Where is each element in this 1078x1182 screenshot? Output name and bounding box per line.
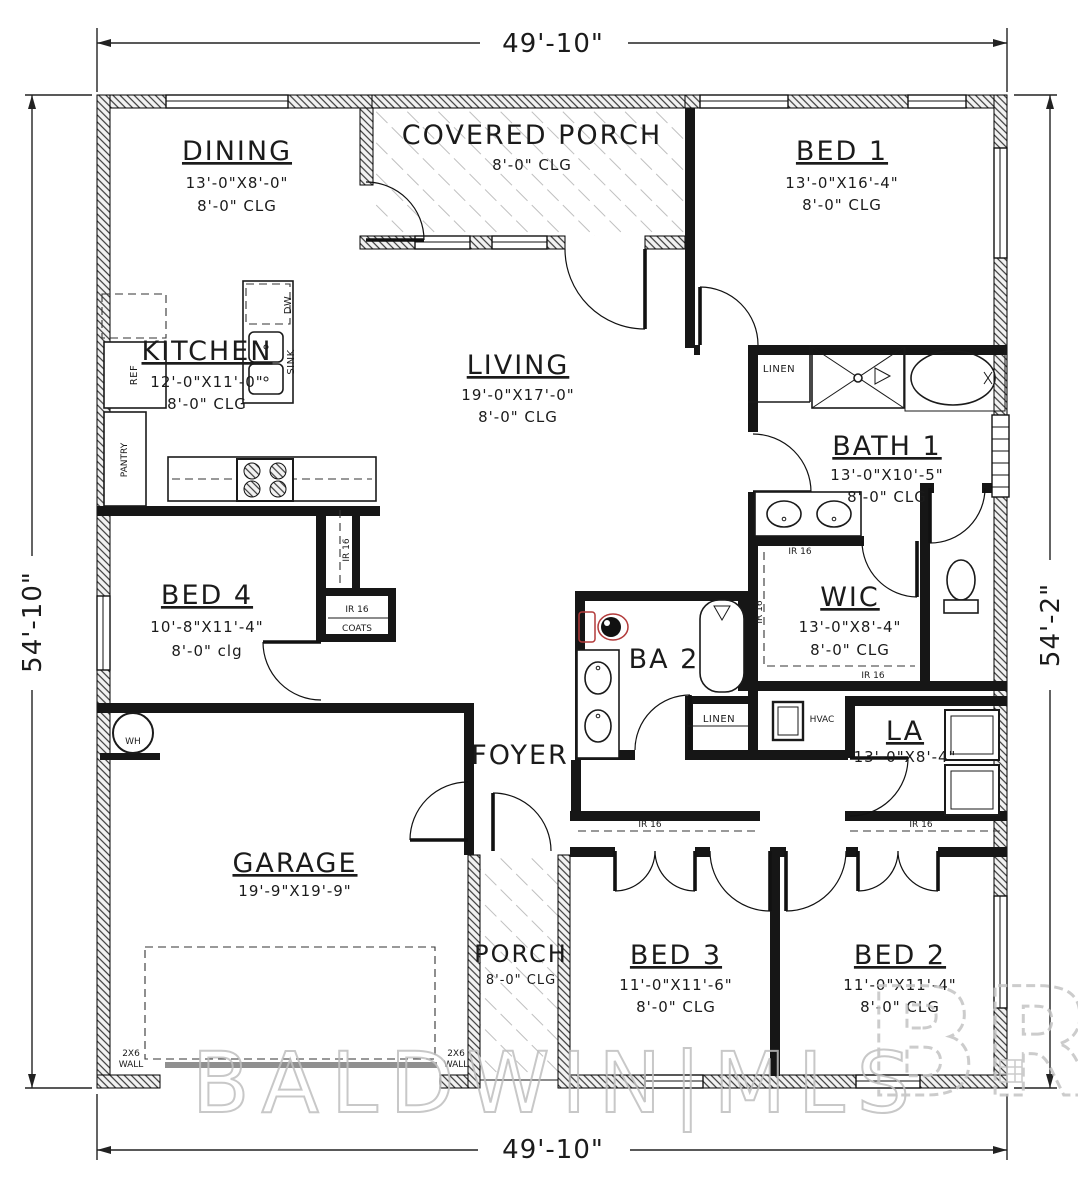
dryer	[945, 765, 999, 815]
window	[492, 236, 547, 249]
door-front-entry	[493, 793, 551, 851]
door-bed4	[263, 642, 321, 700]
room-name: WIC	[820, 582, 880, 613]
watermark-text: BALDWIN|MLS	[192, 1034, 922, 1132]
room-label-foyer: FOYER	[471, 740, 569, 771]
floor-plan-page: 49'-10" 49'-10" 54'-10" 54'-2"	[0, 0, 1078, 1182]
stove	[237, 459, 293, 501]
room-clg: 8'-0" clg	[171, 642, 242, 660]
room-name: LA	[886, 716, 924, 747]
room-name: BATH 1	[832, 431, 941, 462]
room-size: 10'-8"X11'-4"	[150, 618, 263, 636]
toilet-seat	[601, 617, 621, 637]
dimension-right: 54'-2"	[1014, 95, 1066, 1088]
window	[994, 148, 1007, 258]
room-label-ba2: BA 2	[629, 644, 700, 675]
dim-left-label: 54'-10"	[18, 571, 48, 673]
room-clg: 8'-0" CLG	[802, 196, 882, 214]
ir16-label: IR 16	[861, 671, 884, 681]
room-name: COVERED PORCH	[402, 120, 662, 151]
water-heater	[113, 713, 153, 753]
dim-bottom-label: 49'-10"	[502, 1135, 604, 1165]
room-name: DINING	[182, 136, 292, 167]
room-clg: 8'-0" CLG	[847, 488, 927, 506]
room-clg: 8'-0" CLG	[492, 156, 572, 174]
double-vanity	[755, 492, 861, 536]
toilet	[947, 560, 975, 600]
room-clg: 8'-0" CLG	[636, 998, 716, 1016]
room-size: 13'-0"X8'-4"	[799, 618, 902, 636]
room-label-dining: DINING 13'-0"X8'-0" 8'-0" CLG	[182, 136, 292, 215]
room-clg: 8'-0" CLG	[478, 408, 558, 426]
ba2-tub	[700, 600, 744, 692]
shower-head-icon	[875, 368, 890, 384]
door-bed1	[700, 287, 758, 345]
floor-plan-drawing: 49'-10" 49'-10" 54'-10" 54'-2"	[0, 0, 1078, 1182]
bathtub	[911, 351, 995, 405]
tub-platform	[905, 347, 1005, 411]
window	[97, 596, 110, 670]
door-ba2	[635, 695, 690, 750]
door-bed2	[786, 851, 846, 911]
room-label-bed1: BED 1 13'-0"X16'-4" 8'-0" CLG	[785, 136, 898, 214]
room-label-bath1: BATH 1 13'-0"X10'-5" 8'-0" CLG	[830, 431, 943, 506]
dimension-top: 49'-10"	[97, 28, 1007, 92]
ref-label: REF	[129, 365, 140, 386]
kitchen-fixtures: REF DW SINK PANTRY	[102, 281, 376, 506]
room-clg: 8'-0" CLG	[167, 395, 247, 413]
window	[166, 95, 288, 108]
ba2-fixtures	[577, 600, 744, 758]
window	[415, 236, 470, 249]
door-porch-living	[565, 249, 645, 329]
room-size: 13'-0"X10'-5"	[830, 466, 943, 484]
room-size: 13'-0"X8'-0"	[186, 174, 289, 192]
room-label-bed4: BED 4 10'-8"X11'-4" 8'-0" clg	[150, 580, 263, 660]
room-label-garage: GARAGE 19'-9"X19'-9"	[232, 848, 357, 900]
pantry-label: PANTRY	[120, 442, 130, 477]
wic-shelving: IR 16 IR 16 IR 16	[755, 547, 915, 681]
room-label-wic: WIC 13'-0"X8'-4" 8'-0" CLG	[799, 582, 902, 659]
room-clg: 8'-0" CLG	[197, 197, 277, 215]
room-label-la: LA 13'-0"X8'-4"	[854, 716, 957, 766]
mullion-window	[992, 415, 1009, 497]
burner	[244, 481, 260, 497]
dim-right-label: 54'-2"	[1036, 583, 1066, 667]
room-size: 13'-0"X8'-4"	[854, 748, 957, 766]
room-label-porch: PORCH 8'-0" CLG	[474, 940, 568, 988]
room-name: GARAGE	[232, 848, 357, 879]
room-size: 12'-0"X11'-0"	[150, 373, 263, 391]
room-name: PORCH	[474, 940, 568, 968]
toilet-tank	[944, 600, 978, 613]
room-size: 19'-0"X17'-0"	[461, 386, 574, 404]
room-clg: 8'-0" CLG	[810, 641, 890, 659]
upper-cabinet	[102, 294, 166, 338]
wall-note: 2X6	[122, 1049, 140, 1059]
ir16-label: IR 16	[788, 547, 811, 557]
door-la	[850, 758, 908, 816]
door-bed3-closet	[615, 851, 695, 891]
room-label-bed3: BED 3 11'-0"X11'-6" 8'-0" CLG	[619, 940, 732, 1016]
ir16-label: IR 16	[638, 820, 661, 830]
ir16-label: IR 16	[755, 600, 765, 623]
room-name: BED 4	[161, 580, 253, 611]
burner	[244, 463, 260, 479]
room-name: BED 1	[796, 136, 888, 167]
linen-label: LINEN	[763, 364, 795, 375]
room-name: BED 3	[630, 940, 722, 971]
sink-label: SINK	[286, 349, 297, 374]
door-bed3	[710, 851, 770, 911]
coats-label: COATS	[342, 624, 372, 634]
wall-note: WALL	[119, 1060, 144, 1070]
wh-label: WH	[125, 737, 141, 747]
room-size: 19'-9"X19'-9"	[238, 882, 351, 900]
window	[908, 95, 966, 108]
burner	[270, 481, 286, 497]
dw-label: DW	[283, 296, 294, 315]
ir16-label: IR 16	[342, 538, 352, 561]
dim-top-label: 49'-10"	[502, 29, 604, 59]
door-garage	[410, 782, 468, 840]
door-bath1	[753, 434, 811, 492]
dimension-left: 54'-10"	[18, 95, 92, 1088]
ir16-label: IR 16	[909, 820, 932, 830]
ir16-label: IR 16	[345, 605, 368, 615]
linen-label: LINEN	[703, 714, 735, 725]
door-bed2-closet	[858, 851, 938, 891]
room-size: 11'-0"X11'-6"	[619, 976, 732, 994]
hvac-label: HVAC	[810, 715, 835, 725]
doors	[263, 182, 985, 911]
room-label-living: LIVING 19'-0"X17'-0" 8'-0" CLG	[461, 350, 574, 426]
window	[700, 95, 788, 108]
room-size: 13'-0"X16'-4"	[785, 174, 898, 192]
room-name: KITCHEN	[142, 336, 273, 367]
door-toilet-room	[930, 488, 985, 543]
room-clg: 8'-0" CLG	[486, 973, 556, 988]
burner	[270, 463, 286, 479]
room-name: LIVING	[467, 350, 570, 381]
